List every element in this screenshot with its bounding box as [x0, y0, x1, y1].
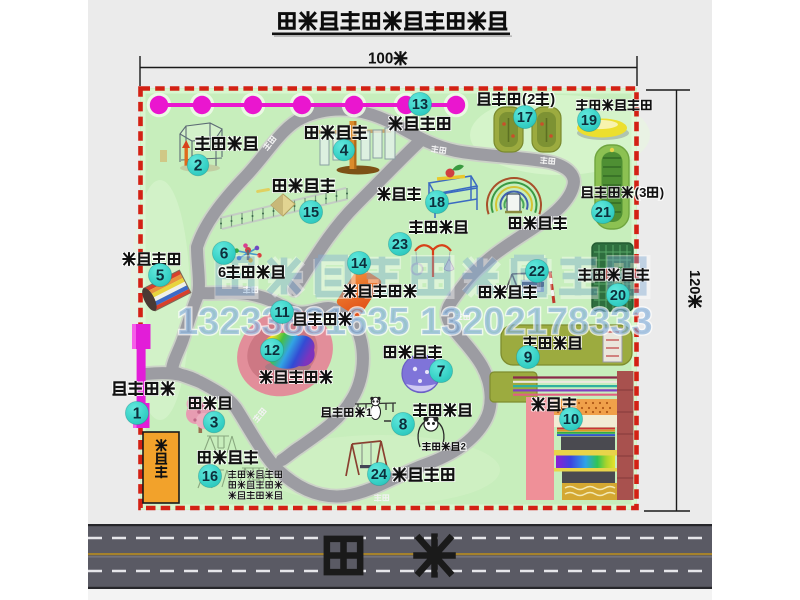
svg-text:22: 22 — [529, 264, 545, 280]
svg-text:10: 10 — [563, 412, 579, 428]
svg-text:5: 5 — [156, 268, 165, 285]
svg-text:2: 2 — [194, 158, 203, 175]
svg-text:1: 1 — [366, 407, 372, 419]
svg-text:9: 9 — [524, 350, 533, 367]
svg-text:8: 8 — [399, 417, 408, 434]
svg-text:21: 21 — [595, 205, 611, 221]
svg-text:12: 12 — [264, 343, 280, 359]
svg-text:14: 14 — [351, 256, 367, 272]
svg-text:18: 18 — [429, 195, 445, 211]
svg-text:2: 2 — [461, 442, 466, 453]
svg-text:16: 16 — [202, 469, 218, 485]
svg-text:15: 15 — [303, 205, 319, 221]
svg-text:0: 0 — [376, 50, 384, 67]
svg-text:3: 3 — [210, 415, 219, 432]
svg-text:3: 3 — [639, 185, 646, 200]
svg-text:23: 23 — [392, 237, 408, 253]
svg-text:7: 7 — [437, 364, 446, 381]
svg-text:): ) — [660, 185, 664, 200]
svg-text:): ) — [550, 92, 555, 108]
svg-text:4: 4 — [340, 143, 349, 160]
svg-text:19: 19 — [581, 113, 597, 129]
svg-text:20: 20 — [610, 288, 626, 304]
svg-text:24: 24 — [371, 467, 387, 483]
svg-text:17: 17 — [517, 110, 533, 126]
svg-text:2: 2 — [686, 278, 702, 286]
svg-text:13: 13 — [412, 97, 428, 113]
svg-text:0: 0 — [385, 50, 393, 67]
svg-text:6: 6 — [220, 246, 229, 263]
svg-text:1: 1 — [686, 270, 702, 278]
svg-text:0: 0 — [686, 286, 702, 294]
svg-text:1: 1 — [133, 406, 142, 423]
svg-text:6: 6 — [218, 265, 226, 281]
svg-text:11: 11 — [274, 305, 289, 321]
